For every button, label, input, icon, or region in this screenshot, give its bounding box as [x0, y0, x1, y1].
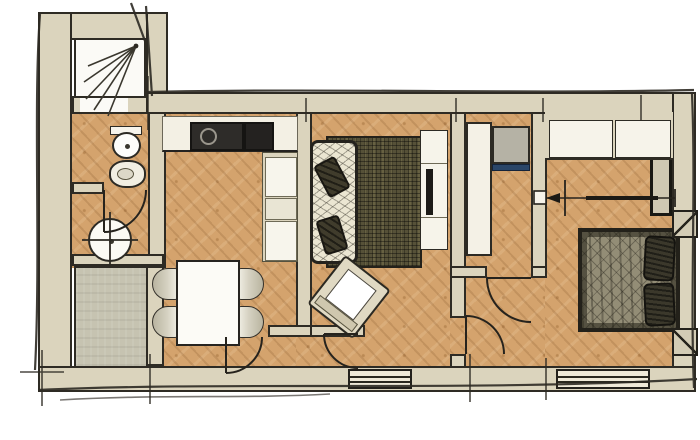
dining-chair [152, 268, 178, 300]
basin-drain-icon [109, 239, 114, 244]
appliance-accent-strip [492, 164, 530, 171]
tv-icon [426, 169, 433, 215]
hall-closet [466, 122, 492, 256]
wardrobe-strip [545, 112, 673, 160]
sideboard-shelf-line [421, 163, 447, 164]
dining-chair [152, 306, 178, 338]
kitchen-sink-unit [190, 122, 244, 151]
door-opening-shower [80, 98, 128, 112]
nightstand [672, 210, 698, 238]
wall-living-hall [450, 112, 466, 270]
window-living [348, 369, 412, 389]
cabinet-door [265, 198, 297, 220]
appliance-niche [492, 126, 530, 164]
bidet-basin [117, 168, 134, 180]
toilet-drain-icon [125, 144, 130, 149]
wall-hall-left-upper [450, 276, 466, 318]
wall-top-outer [146, 92, 696, 114]
washbasin [88, 218, 132, 262]
double-bed [578, 228, 680, 332]
window-bedroom [556, 369, 650, 389]
pillow [643, 235, 676, 282]
kitchen-tall-cabinets [262, 152, 298, 262]
nightstand [672, 328, 698, 356]
sink-drain-icon [200, 128, 217, 145]
toilet [112, 132, 141, 159]
sofa-cushion [315, 214, 348, 255]
sofa-cushion [313, 155, 351, 198]
kitchen-cooktop-unit [244, 122, 274, 151]
wall-hall-left-lower [450, 354, 466, 368]
wardrobe-door [549, 120, 613, 158]
sofa [310, 140, 358, 264]
wall-vestibule-left [268, 325, 312, 337]
cabinet-door [265, 221, 297, 261]
tv-sideboard [420, 130, 448, 250]
wardrobe-door [615, 120, 671, 158]
wall-annex-right [146, 12, 168, 100]
floor-storage [74, 266, 148, 368]
floor-plan-canvas [0, 0, 700, 440]
wall-left-outer [38, 12, 72, 368]
floor-shower-room [74, 38, 146, 100]
wall-wc-stub [72, 182, 104, 194]
dining-table [176, 260, 240, 346]
cabinet-door [265, 157, 297, 197]
sideboard-shelf-line [421, 217, 447, 218]
pillow [643, 282, 676, 327]
bidet [109, 160, 146, 188]
